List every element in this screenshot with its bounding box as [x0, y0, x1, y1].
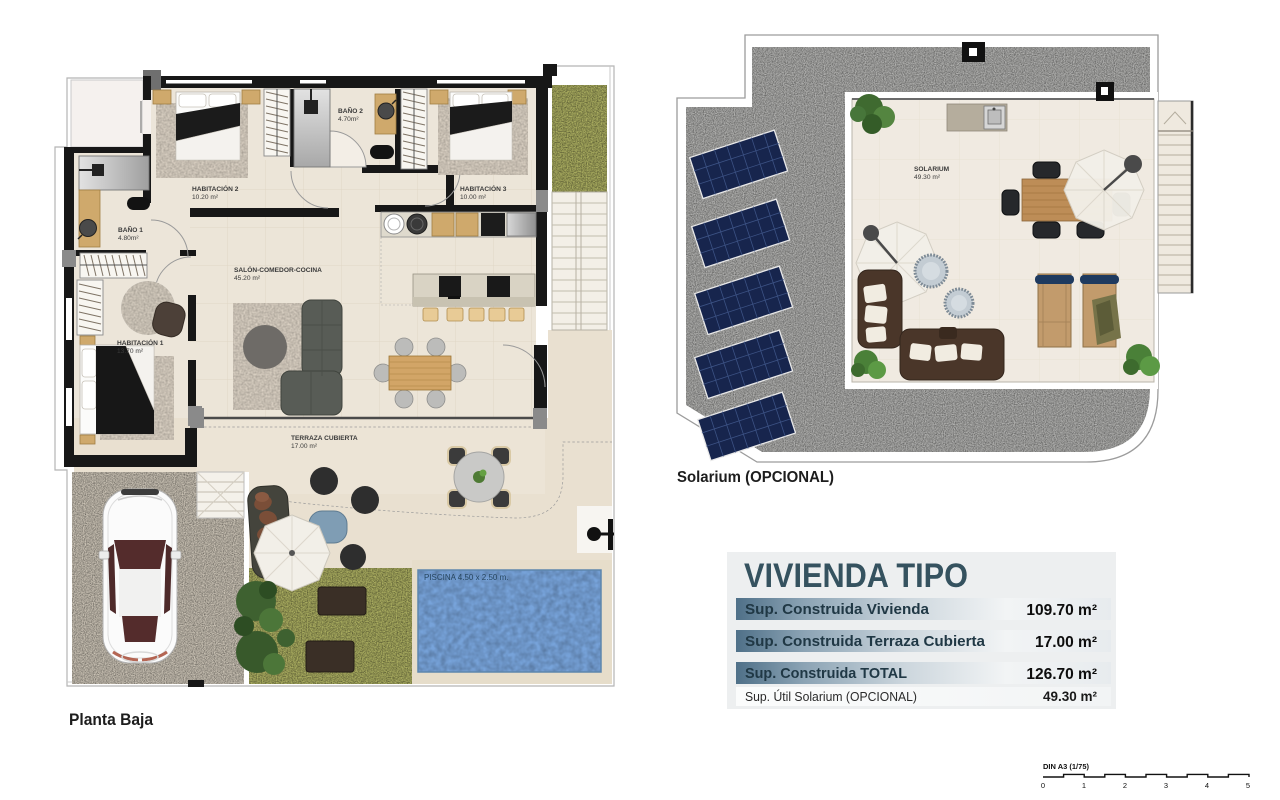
svg-text:SOLARIUM: SOLARIUM	[914, 166, 950, 173]
svg-text:Sup. Construida TOTAL: Sup. Construida TOTAL	[745, 665, 907, 682]
svg-text:SALÓN-COMEDOR-COCINA: SALÓN-COMEDOR-COCINA	[234, 265, 322, 274]
svg-text:HABITACIÓN 3: HABITACIÓN 3	[460, 184, 507, 193]
svg-text:49.30 m²: 49.30 m²	[1043, 689, 1098, 704]
svg-text:17.00 m²: 17.00 m²	[1035, 634, 1097, 651]
svg-text:4: 4	[1205, 781, 1209, 790]
svg-text:4.70m²: 4.70m²	[338, 116, 359, 123]
svg-text:2: 2	[1123, 781, 1127, 790]
svg-text:VIVIENDA TIPO: VIVIENDA TIPO	[744, 557, 968, 595]
svg-text:126.70 m²: 126.70 m²	[1026, 666, 1097, 683]
svg-text:45.20 m²: 45.20 m²	[234, 275, 261, 282]
svg-text:BAÑO 2: BAÑO 2	[338, 106, 363, 115]
svg-text:PISCINA 4.50 x 2.50 m.: PISCINA 4.50 x 2.50 m.	[424, 573, 508, 582]
svg-text:Solarium (OPCIONAL): Solarium (OPCIONAL)	[677, 469, 834, 486]
svg-text:109.70 m²: 109.70 m²	[1026, 602, 1097, 619]
svg-text:Sup. Construida Vivienda: Sup. Construida Vivienda	[745, 601, 930, 618]
svg-text:10.20 m²: 10.20 m²	[192, 194, 219, 201]
svg-text:BAÑO 1: BAÑO 1	[118, 225, 143, 234]
svg-text:4.80m²: 4.80m²	[118, 235, 139, 242]
svg-text:49.30 m²: 49.30 m²	[914, 174, 941, 181]
svg-text:0: 0	[1041, 781, 1045, 790]
svg-text:Sup. Útil Solarium (OPCIONAL): Sup. Útil Solarium (OPCIONAL)	[745, 689, 917, 704]
svg-text:3: 3	[1164, 781, 1168, 790]
svg-text:Planta Baja: Planta Baja	[69, 710, 153, 729]
svg-text:1: 1	[1082, 781, 1086, 790]
svg-text:17.00 m²: 17.00 m²	[291, 443, 318, 450]
svg-text:DIN A3 (1/75): DIN A3 (1/75)	[1043, 762, 1089, 771]
svg-text:HABITACIÓN 2: HABITACIÓN 2	[192, 184, 239, 193]
svg-text:13.70 m²: 13.70 m²	[117, 348, 144, 355]
svg-text:5: 5	[1246, 781, 1250, 790]
svg-text:10.00 m²: 10.00 m²	[460, 194, 487, 201]
svg-text:Sup. Construida Terraza Cubier: Sup. Construida Terraza Cubierta	[745, 633, 986, 650]
svg-text:HABITACIÓN 1: HABITACIÓN 1	[117, 338, 164, 347]
svg-text:TERRAZA CUBIERTA: TERRAZA CUBIERTA	[291, 435, 358, 442]
